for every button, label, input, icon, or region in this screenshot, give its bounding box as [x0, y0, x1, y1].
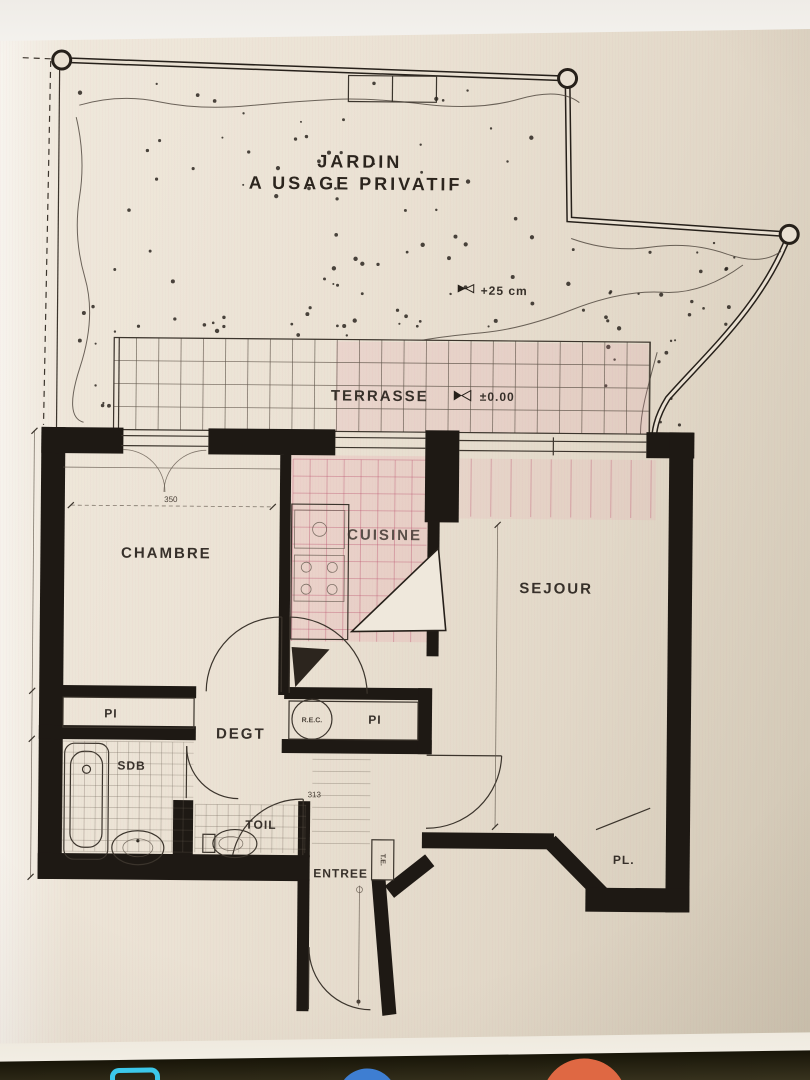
blue-round-app-icon[interactable] — [338, 1068, 397, 1080]
photographed-screen: JARDIN A USAGE PRIVATIF +25 cm TERRASSE … — [0, 0, 810, 1080]
cyan-square-app-icon[interactable] — [110, 1067, 161, 1080]
photo-vignette — [0, 0, 810, 1080]
orange-round-app-icon[interactable] — [542, 1058, 627, 1080]
